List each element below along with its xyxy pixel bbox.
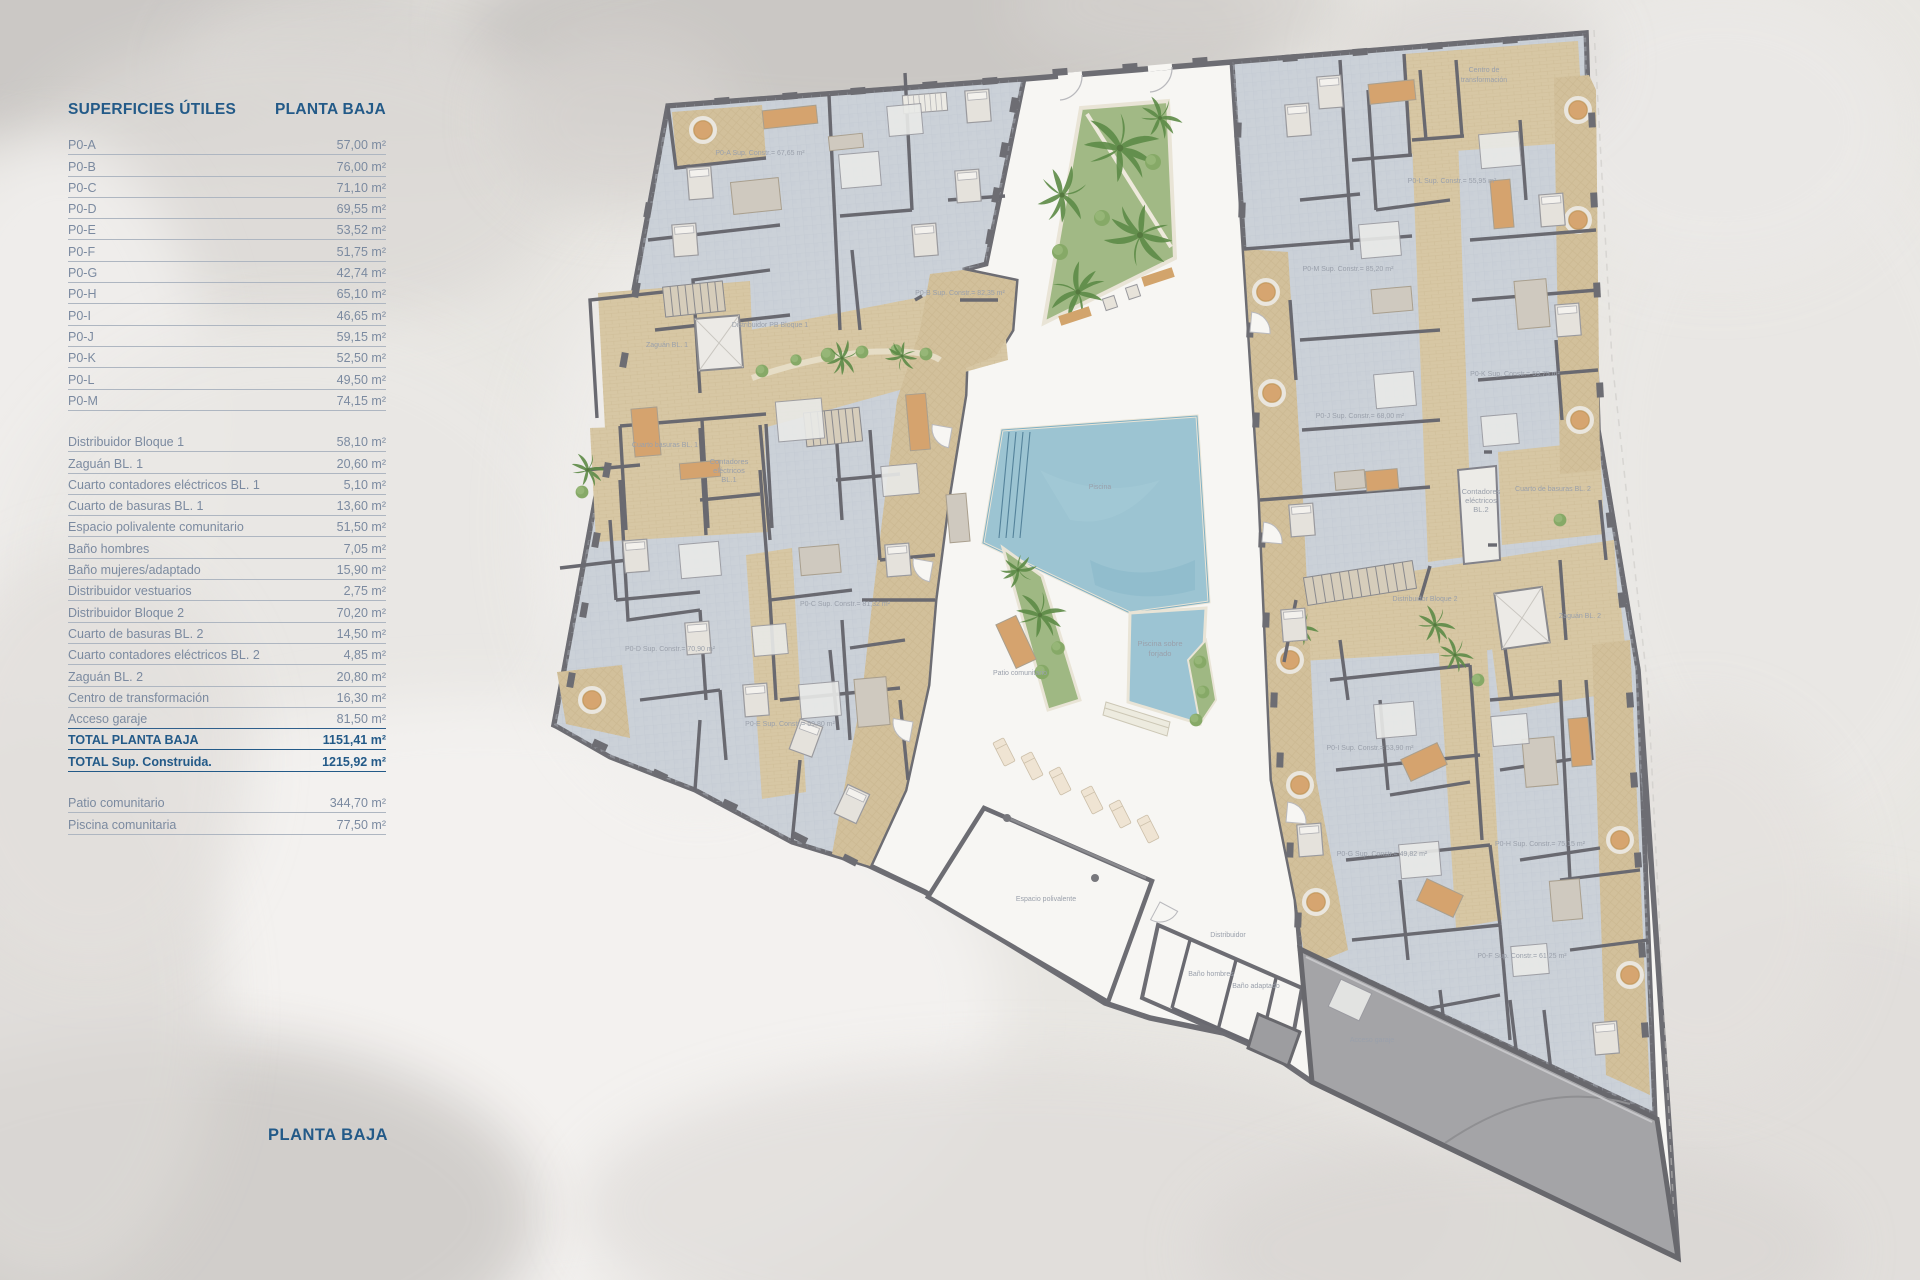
svg-text:BL.1: BL.1: [721, 475, 736, 484]
svg-text:Contadores: Contadores: [1462, 487, 1501, 496]
svg-text:P0-L Sup. Constr.= 55,95 m²: P0-L Sup. Constr.= 55,95 m²: [1408, 178, 1497, 185]
svg-text:Distribuidor: Distribuidor: [1210, 932, 1246, 939]
svg-text:transformación: transformación: [1461, 77, 1507, 84]
svg-text:Acceso garaje: Acceso garaje: [1350, 1037, 1394, 1044]
svg-text:Contadores: Contadores: [710, 457, 749, 466]
svg-text:P0-H Sup. Constr.= 75,15 m²: P0-H Sup. Constr.= 75,15 m²: [1495, 841, 1586, 848]
svg-text:BL.2: BL.2: [1473, 505, 1488, 514]
svg-text:Espacio polivalente: Espacio polivalente: [1016, 896, 1076, 903]
svg-text:P0-C Sup. Constr.= 81,32 m²: P0-C Sup. Constr.= 81,32 m²: [800, 601, 891, 608]
svg-text:P0-G Sup. Constr.= 49,82 m²: P0-G Sup. Constr.= 49,82 m²: [1337, 851, 1428, 858]
svg-text:Cuarto basuras BL. 1: Cuarto basuras BL. 1: [632, 442, 698, 449]
svg-text:P0-A Sup. Constr.= 67,65 m²: P0-A Sup. Constr.= 67,65 m²: [715, 150, 805, 157]
svg-text:P0-B Sup. Constr.= 82,35 m²: P0-B Sup. Constr.= 82,35 m²: [915, 290, 1005, 297]
svg-text:P0-K Sup. Constr.= 59,75 m²: P0-K Sup. Constr.= 59,75 m²: [1470, 371, 1560, 378]
svg-text:P0-J Sup. Constr.= 68,00 m²: P0-J Sup. Constr.= 68,00 m²: [1316, 413, 1405, 420]
svg-text:forjado: forjado: [1149, 649, 1172, 658]
svg-text:P0-D Sup. Constr.= 70,90 m²: P0-D Sup. Constr.= 70,90 m²: [625, 646, 716, 653]
svg-text:Zaguán BL. 1: Zaguán BL. 1: [646, 342, 688, 349]
svg-text:Baño adaptado: Baño adaptado: [1232, 983, 1280, 990]
svg-text:P0-E Sup. Constr.= 59,80 m²: P0-E Sup. Constr.= 59,80 m²: [745, 721, 835, 728]
svg-text:Cuarto de basuras BL. 2: Cuarto de basuras BL. 2: [1515, 486, 1591, 493]
svg-text:eléctricos: eléctricos: [713, 466, 745, 475]
svg-text:Distribuidor Bloque 2: Distribuidor Bloque 2: [1393, 596, 1458, 603]
svg-text:Piscina: Piscina: [1089, 484, 1112, 491]
svg-text:P0-I Sup. Constr.= 53,90 m²: P0-I Sup. Constr.= 53,90 m²: [1327, 745, 1415, 752]
svg-text:eléctricos: eléctricos: [1465, 496, 1497, 505]
svg-text:Distribuidor PB Bloque 1: Distribuidor PB Bloque 1: [732, 322, 808, 329]
svg-text:Zaguán BL. 2: Zaguán BL. 2: [1559, 613, 1601, 620]
svg-text:Centro de: Centro de: [1469, 67, 1500, 74]
svg-text:Patio comunitario: Patio comunitario: [993, 670, 1047, 677]
svg-text:P0-M Sup. Constr.= 85,20 m²: P0-M Sup. Constr.= 85,20 m²: [1303, 266, 1395, 273]
svg-text:Piscina sobre: Piscina sobre: [1137, 639, 1182, 648]
svg-text:Baño hombres: Baño hombres: [1188, 971, 1234, 978]
svg-text:P0-F Sup. Constr.= 61,25 m²: P0-F Sup. Constr.= 61,25 m²: [1477, 953, 1567, 960]
